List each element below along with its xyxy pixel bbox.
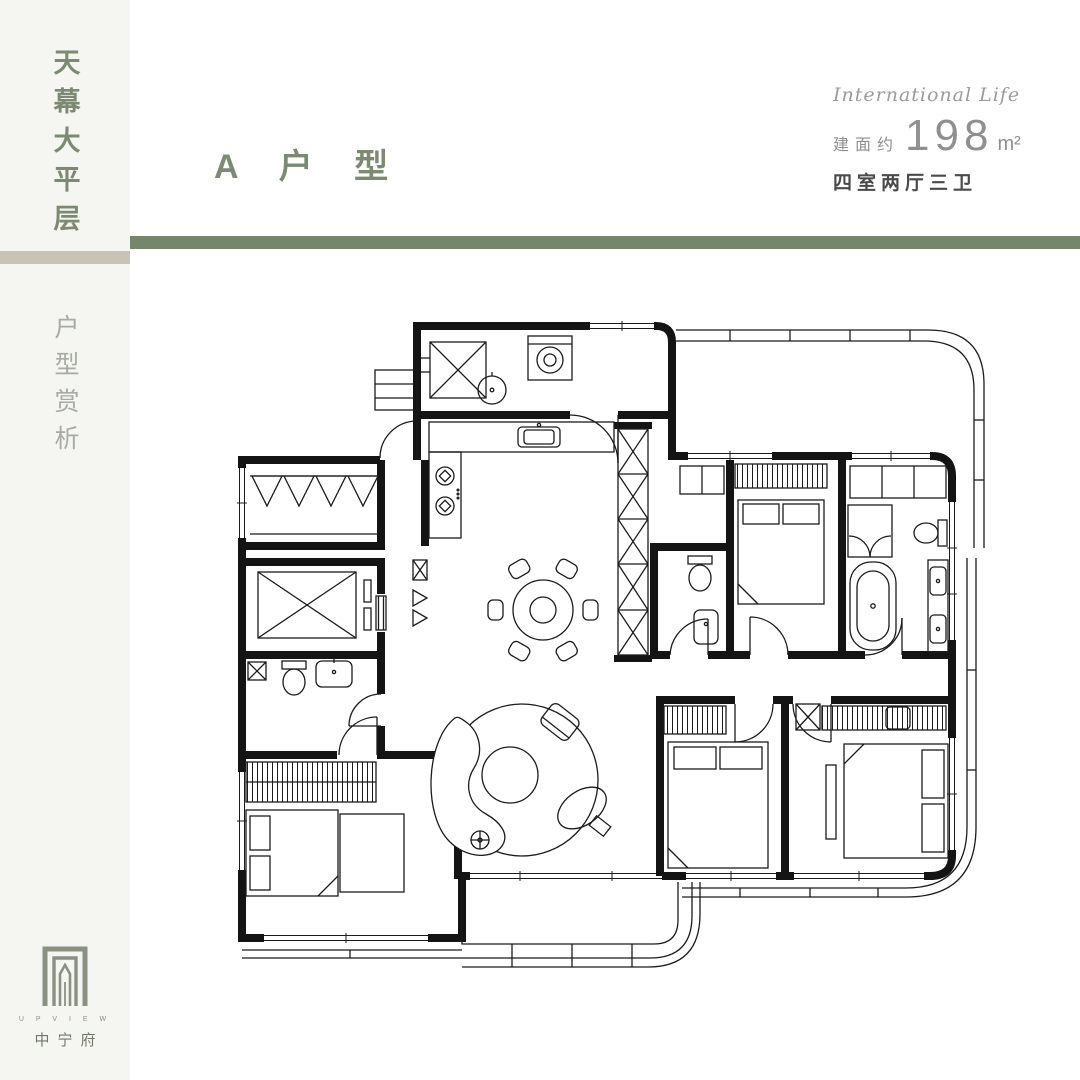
toilet-icon-3 [914,520,947,546]
shower-icon [848,505,892,557]
entry-door [375,370,417,458]
area-row: 建面约 198 m² [833,114,1063,158]
ac-platform [250,476,378,534]
bed-icon-master [826,744,948,858]
layout-summary: 四室两厅三卫 [833,168,1063,195]
tagline: International Life [833,84,1063,106]
living-room [431,701,614,856]
chaise-icon [550,779,614,838]
adjacent-facade-top [676,330,984,548]
poster-canvas: 天幕大平层 户型赏析 U P V I E W 中宁府 A 户 型 Interna… [0,0,1080,1080]
bed-icon-2 [738,500,824,604]
living-balcony [242,871,700,967]
kitchen [413,422,614,626]
sidebar-title-vertical: 天幕大平层 [46,48,85,243]
area-label: 建面约 [833,131,899,155]
floor-plan-figure [230,310,990,990]
interior-walls [242,411,952,879]
brand-name-en: U P V I E W [0,1016,130,1023]
bed-icon-3 [668,742,768,868]
bathroom-hall [670,556,718,655]
stove-icon [436,467,459,515]
page-title: A 户 型 [214,139,404,188]
bedroom-3 [664,704,773,868]
bed-icon-1 [246,810,404,896]
bathtub-icon [850,562,896,650]
washing-machine-icon [528,336,572,380]
area-unit: m² [997,133,1020,156]
laundry-room [421,336,618,463]
floor-lamp-icon [471,831,489,849]
brand-logo: U P V I E W 中宁府 [0,946,130,1050]
toilet-icon [282,661,306,695]
bathroom-guest-west [248,657,381,726]
sidebar: 天幕大平层 户型赏析 U P V I E W 中宁府 [0,0,130,1080]
sofa-icon [431,717,505,855]
master-bathroom [848,466,948,655]
dining-table [488,557,598,662]
toilet-icon-2 [688,556,712,591]
hall-closets [680,464,827,494]
kitchen-sink-icon [518,423,560,447]
divider-bar-beige [0,251,130,264]
unit-info: International Life 建面约 198 m² 四室两厅三卫 [833,84,1063,195]
sidebar-subtitle-vertical: 户型赏析 [47,314,83,462]
service-shaft [614,422,652,662]
divider-bar-green [130,236,1080,249]
area-value: 198 [905,114,993,158]
windows [237,321,957,943]
bedroom-2 [738,500,824,655]
utility-sink-icon [478,372,506,404]
brand-name-cn: 中宁府 [0,1029,130,1050]
elevator [258,572,386,638]
sink-icon-2 [694,610,718,644]
double-vanity-icon [928,560,948,652]
master-bedroom [793,704,948,858]
brand-emblem-icon [42,946,88,1006]
dining-chairs [488,557,598,662]
sink-icon [316,657,352,687]
